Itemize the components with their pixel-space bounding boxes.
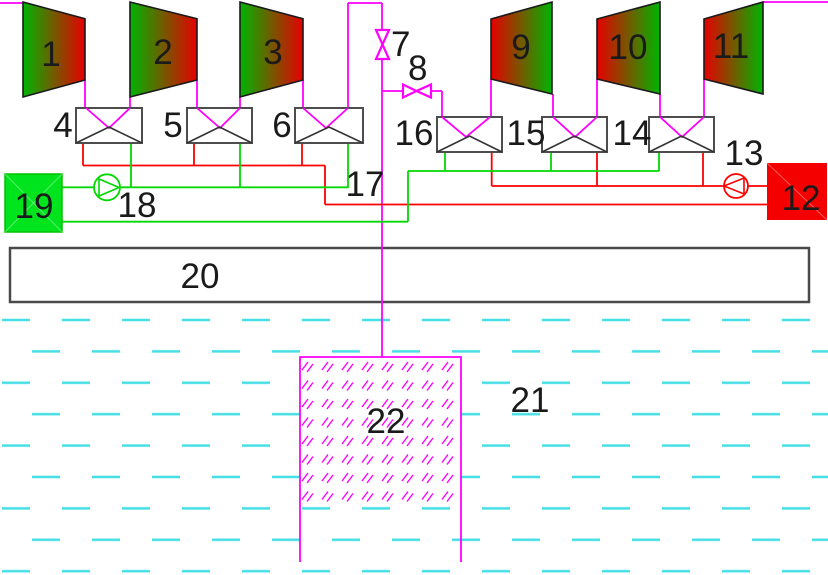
schematic-canvas: 1 2 3 4 5 6 7 8 9 10 11 12 13 14 15 16 1…: [0, 0, 828, 575]
schematic-page: 1 2 3 4 5 6 7 8 9 10 11 12 13 14 15 16 1…: [0, 0, 828, 575]
turbine-1-label: 1: [41, 35, 60, 74]
surface-unit-20-label: 20: [181, 257, 220, 296]
valve-8-label: 8: [408, 49, 427, 88]
heat-exchanger-16: [437, 117, 502, 152]
hx-16-label: 16: [395, 114, 434, 153]
heat-exchanger-4: [76, 108, 142, 143]
pump-18-label: 18: [118, 186, 157, 225]
turbine-9-label: 9: [511, 28, 530, 67]
cold-tank-19-label: 19: [15, 187, 54, 226]
hx-15-label: 15: [507, 114, 546, 153]
turbine-10-label: 10: [609, 28, 648, 67]
turbine-2-label: 2: [153, 33, 172, 72]
surface-unit-20-box: [10, 248, 809, 302]
heat-exchanger-6: [295, 108, 363, 143]
junction-17-label: 17: [346, 165, 385, 204]
heat-exchanger-14: [649, 117, 714, 152]
hx-5-label: 5: [163, 106, 182, 145]
hx-14-label: 14: [613, 114, 652, 153]
pump-18-icon: [94, 174, 120, 200]
pump-13-icon: [724, 174, 748, 198]
well-22-label: 22: [367, 402, 406, 441]
ground-21-label: 21: [511, 381, 550, 420]
heat-exchanger-5: [187, 108, 252, 143]
pump-13-label: 13: [725, 134, 764, 173]
turbine-3-label: 3: [263, 33, 282, 72]
hot-tank-12-label: 12: [782, 179, 821, 218]
heat-exchanger-15: [542, 117, 607, 152]
hx-6-label: 6: [272, 106, 291, 145]
turbine-11-label: 11: [713, 27, 749, 66]
valve-7-icon: [376, 30, 389, 59]
hx-4-label: 4: [53, 106, 72, 145]
